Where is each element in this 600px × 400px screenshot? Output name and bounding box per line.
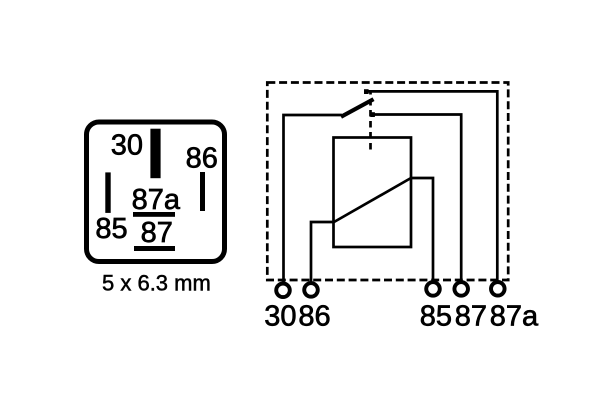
svg-text:87: 87 (141, 217, 173, 249)
svg-text:85: 85 (95, 213, 127, 245)
svg-text:86: 86 (298, 301, 330, 333)
svg-text:87: 87 (455, 301, 487, 333)
svg-text:30: 30 (264, 301, 296, 333)
svg-text:86: 86 (186, 143, 218, 175)
svg-text:87a: 87a (132, 184, 181, 216)
svg-text:30: 30 (111, 130, 143, 162)
svg-text:85: 85 (420, 301, 452, 333)
svg-text:5 x 6.3 mm: 5 x 6.3 mm (102, 271, 211, 296)
svg-text:87a: 87a (490, 301, 539, 333)
